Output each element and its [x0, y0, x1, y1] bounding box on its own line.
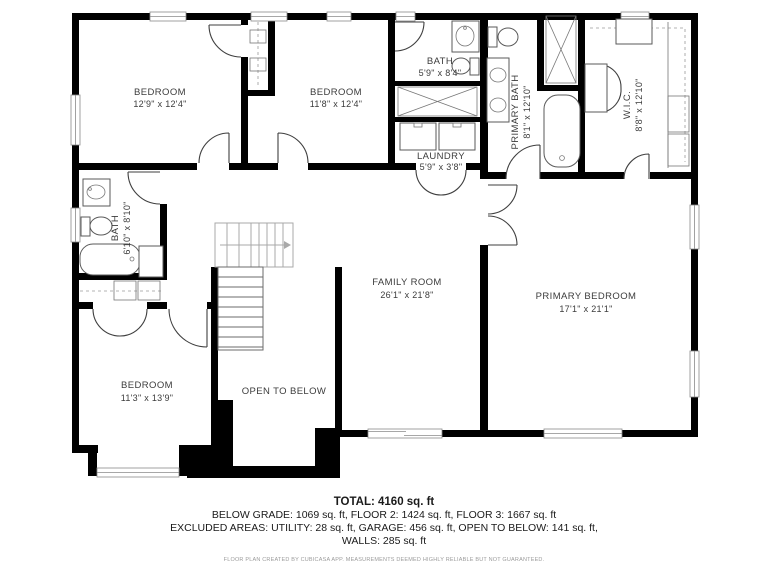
primary-bath-shower	[546, 16, 576, 83]
primary-bath-tub	[544, 95, 580, 167]
left-bath-label: BATH	[110, 215, 121, 241]
upper-bath-shower	[398, 87, 477, 116]
bedroom3-door-arc	[169, 309, 207, 347]
linen-closet	[585, 64, 607, 112]
total-area: TOTAL: 4160 sq. ft	[0, 496, 768, 508]
left-bath-sink	[83, 179, 110, 206]
upper-bath-sink	[452, 21, 479, 52]
wic-dims: 8'8" x 12'10"	[634, 78, 644, 131]
floor-plan-drawing: BEDROOM 12'9" x 12'4" BEDROOM 11'8" x 12…	[0, 0, 768, 576]
bedroom2-dims: 11'8" x 12'4"	[310, 99, 363, 109]
primary-bedroom-dims: 17'1" x 21'1"	[559, 304, 612, 314]
fixtures	[80, 16, 689, 300]
area-summary: TOTAL: 4160 sq. ft BELOW GRADE: 1069 sq.…	[0, 496, 768, 548]
bedroom2-label: BEDROOM	[310, 87, 362, 98]
floor-plan-page: BEDROOM 12'9" x 12'4" BEDROOM 11'8" x 12…	[0, 0, 768, 576]
hall-closet-shelving	[80, 281, 164, 300]
primary-bedroom-label: PRIMARY BEDROOM	[536, 291, 637, 302]
laundry-double-door-arcs	[416, 170, 466, 195]
staircase	[215, 223, 293, 350]
left-bath-door-arc	[128, 172, 160, 204]
open-to-below-label: OPEN TO BELOW	[242, 386, 327, 397]
primary-bedroom-double-door-arcs	[488, 185, 517, 245]
primary-bath-double-vanity	[487, 58, 509, 122]
bedroom3-closet-double-door-arcs	[93, 309, 147, 336]
upper-bath-label: BATH	[427, 56, 453, 67]
floor-areas: BELOW GRADE: 1069 sq. ft, FLOOR 2: 1424 …	[0, 509, 768, 522]
bedroom1-label: BEDROOM	[134, 87, 186, 98]
primary-bath-label: PRIMARY BATH	[510, 74, 521, 149]
left-bath-dims: 6'10" x 8'10"	[122, 201, 132, 254]
bedroom3-label: BEDROOM	[121, 380, 173, 391]
excluded-areas: EXCLUDED AREAS: UTILITY: 28 sq. ft, GARA…	[0, 522, 768, 535]
upper-bath-dims: 5'9" x 8'4"	[419, 68, 462, 78]
wic-door-arc	[624, 154, 649, 179]
wic-label: W.I.C.	[622, 91, 633, 119]
laundry-label: LAUNDRY	[417, 151, 465, 162]
bedroom1-door-arc	[199, 133, 229, 163]
primary-bath-dims: 8'1" x 12'10"	[522, 85, 532, 138]
linen-bifold-door-arcs	[607, 66, 621, 111]
disclaimer-text: FLOOR PLAN CREATED BY CUBICASA APP. MEAS…	[0, 557, 768, 563]
upper-bath-door-arc	[395, 22, 424, 51]
family-room-label: FAMILY ROOM	[372, 277, 442, 288]
bedroom1-dims: 12'9" x 12'4"	[133, 99, 186, 109]
bedroom1-closet-shelving	[250, 22, 266, 86]
family-room-dims: 26'1" x 21'8"	[380, 290, 433, 300]
walls-area: WALLS: 285 sq. ft	[0, 535, 768, 548]
washer-dryer	[400, 123, 475, 150]
left-bath-toilet	[81, 217, 112, 236]
bedroom2-door-arc	[278, 133, 308, 163]
left-bath-linen-cabinet	[139, 246, 163, 277]
bedroom1-closet-door-arc	[209, 25, 241, 57]
bedroom3-dims: 11'3" x 13'9"	[121, 393, 174, 403]
primary-bath-toilet	[488, 27, 518, 47]
stair-flight-lower	[218, 267, 263, 350]
laundry-dims: 5'9" x 3'8"	[420, 162, 463, 172]
stair-flight-above-cut	[215, 223, 293, 267]
